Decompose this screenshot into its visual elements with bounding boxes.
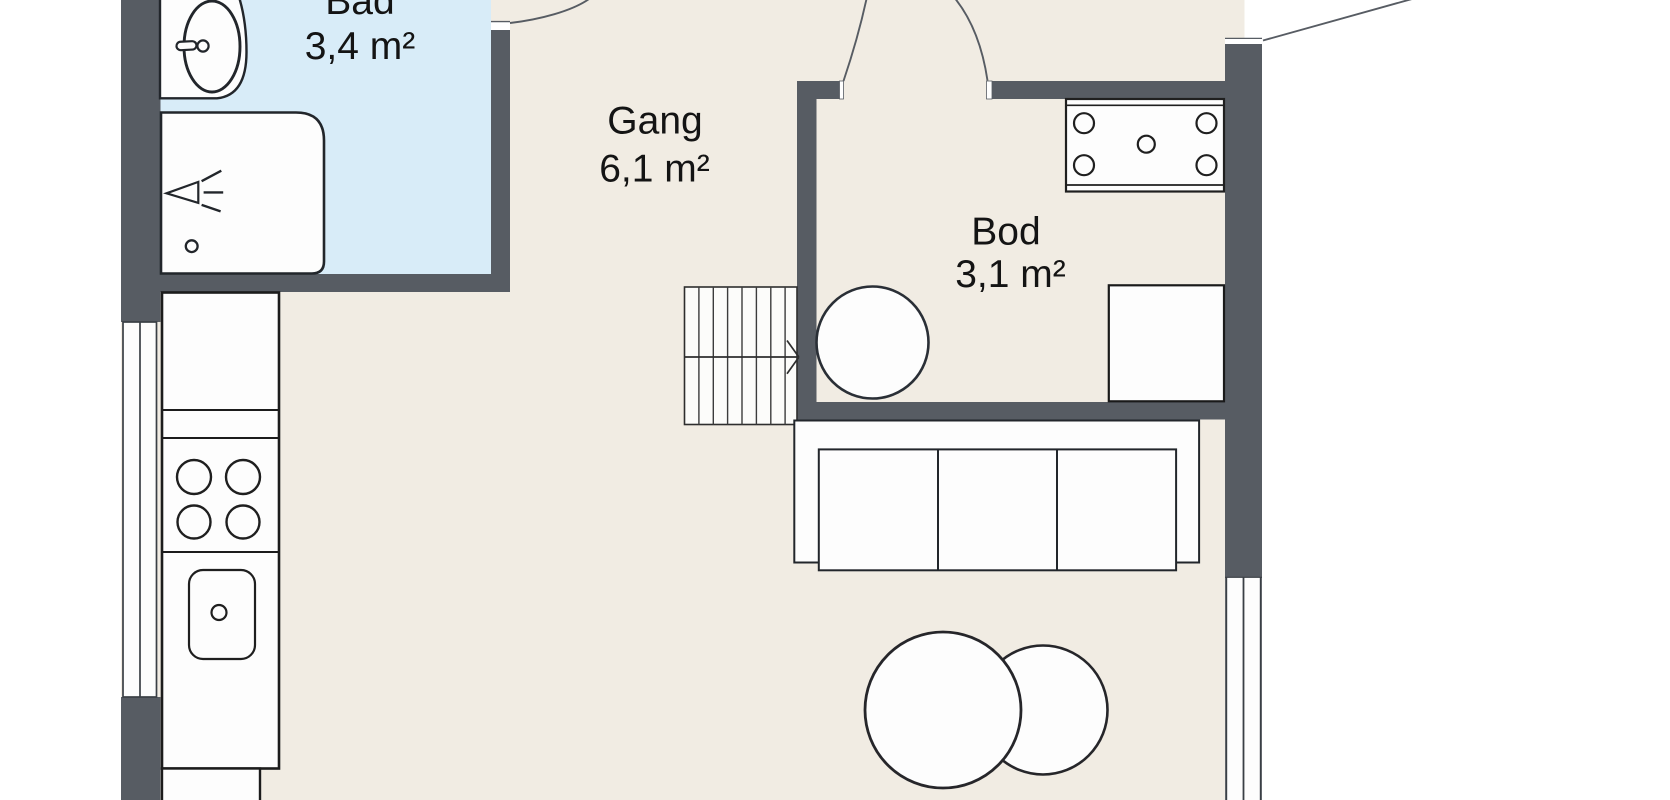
svg-text:6,1 m²: 6,1 m² — [599, 148, 710, 191]
svg-text:3,1 m²: 3,1 m² — [955, 253, 1066, 296]
svg-text:3,4 m²: 3,4 m² — [305, 25, 416, 68]
svg-text:Bad: Bad — [325, 0, 394, 23]
svg-text:Bod: Bod — [971, 211, 1040, 254]
svg-text:Gang: Gang — [607, 100, 702, 143]
